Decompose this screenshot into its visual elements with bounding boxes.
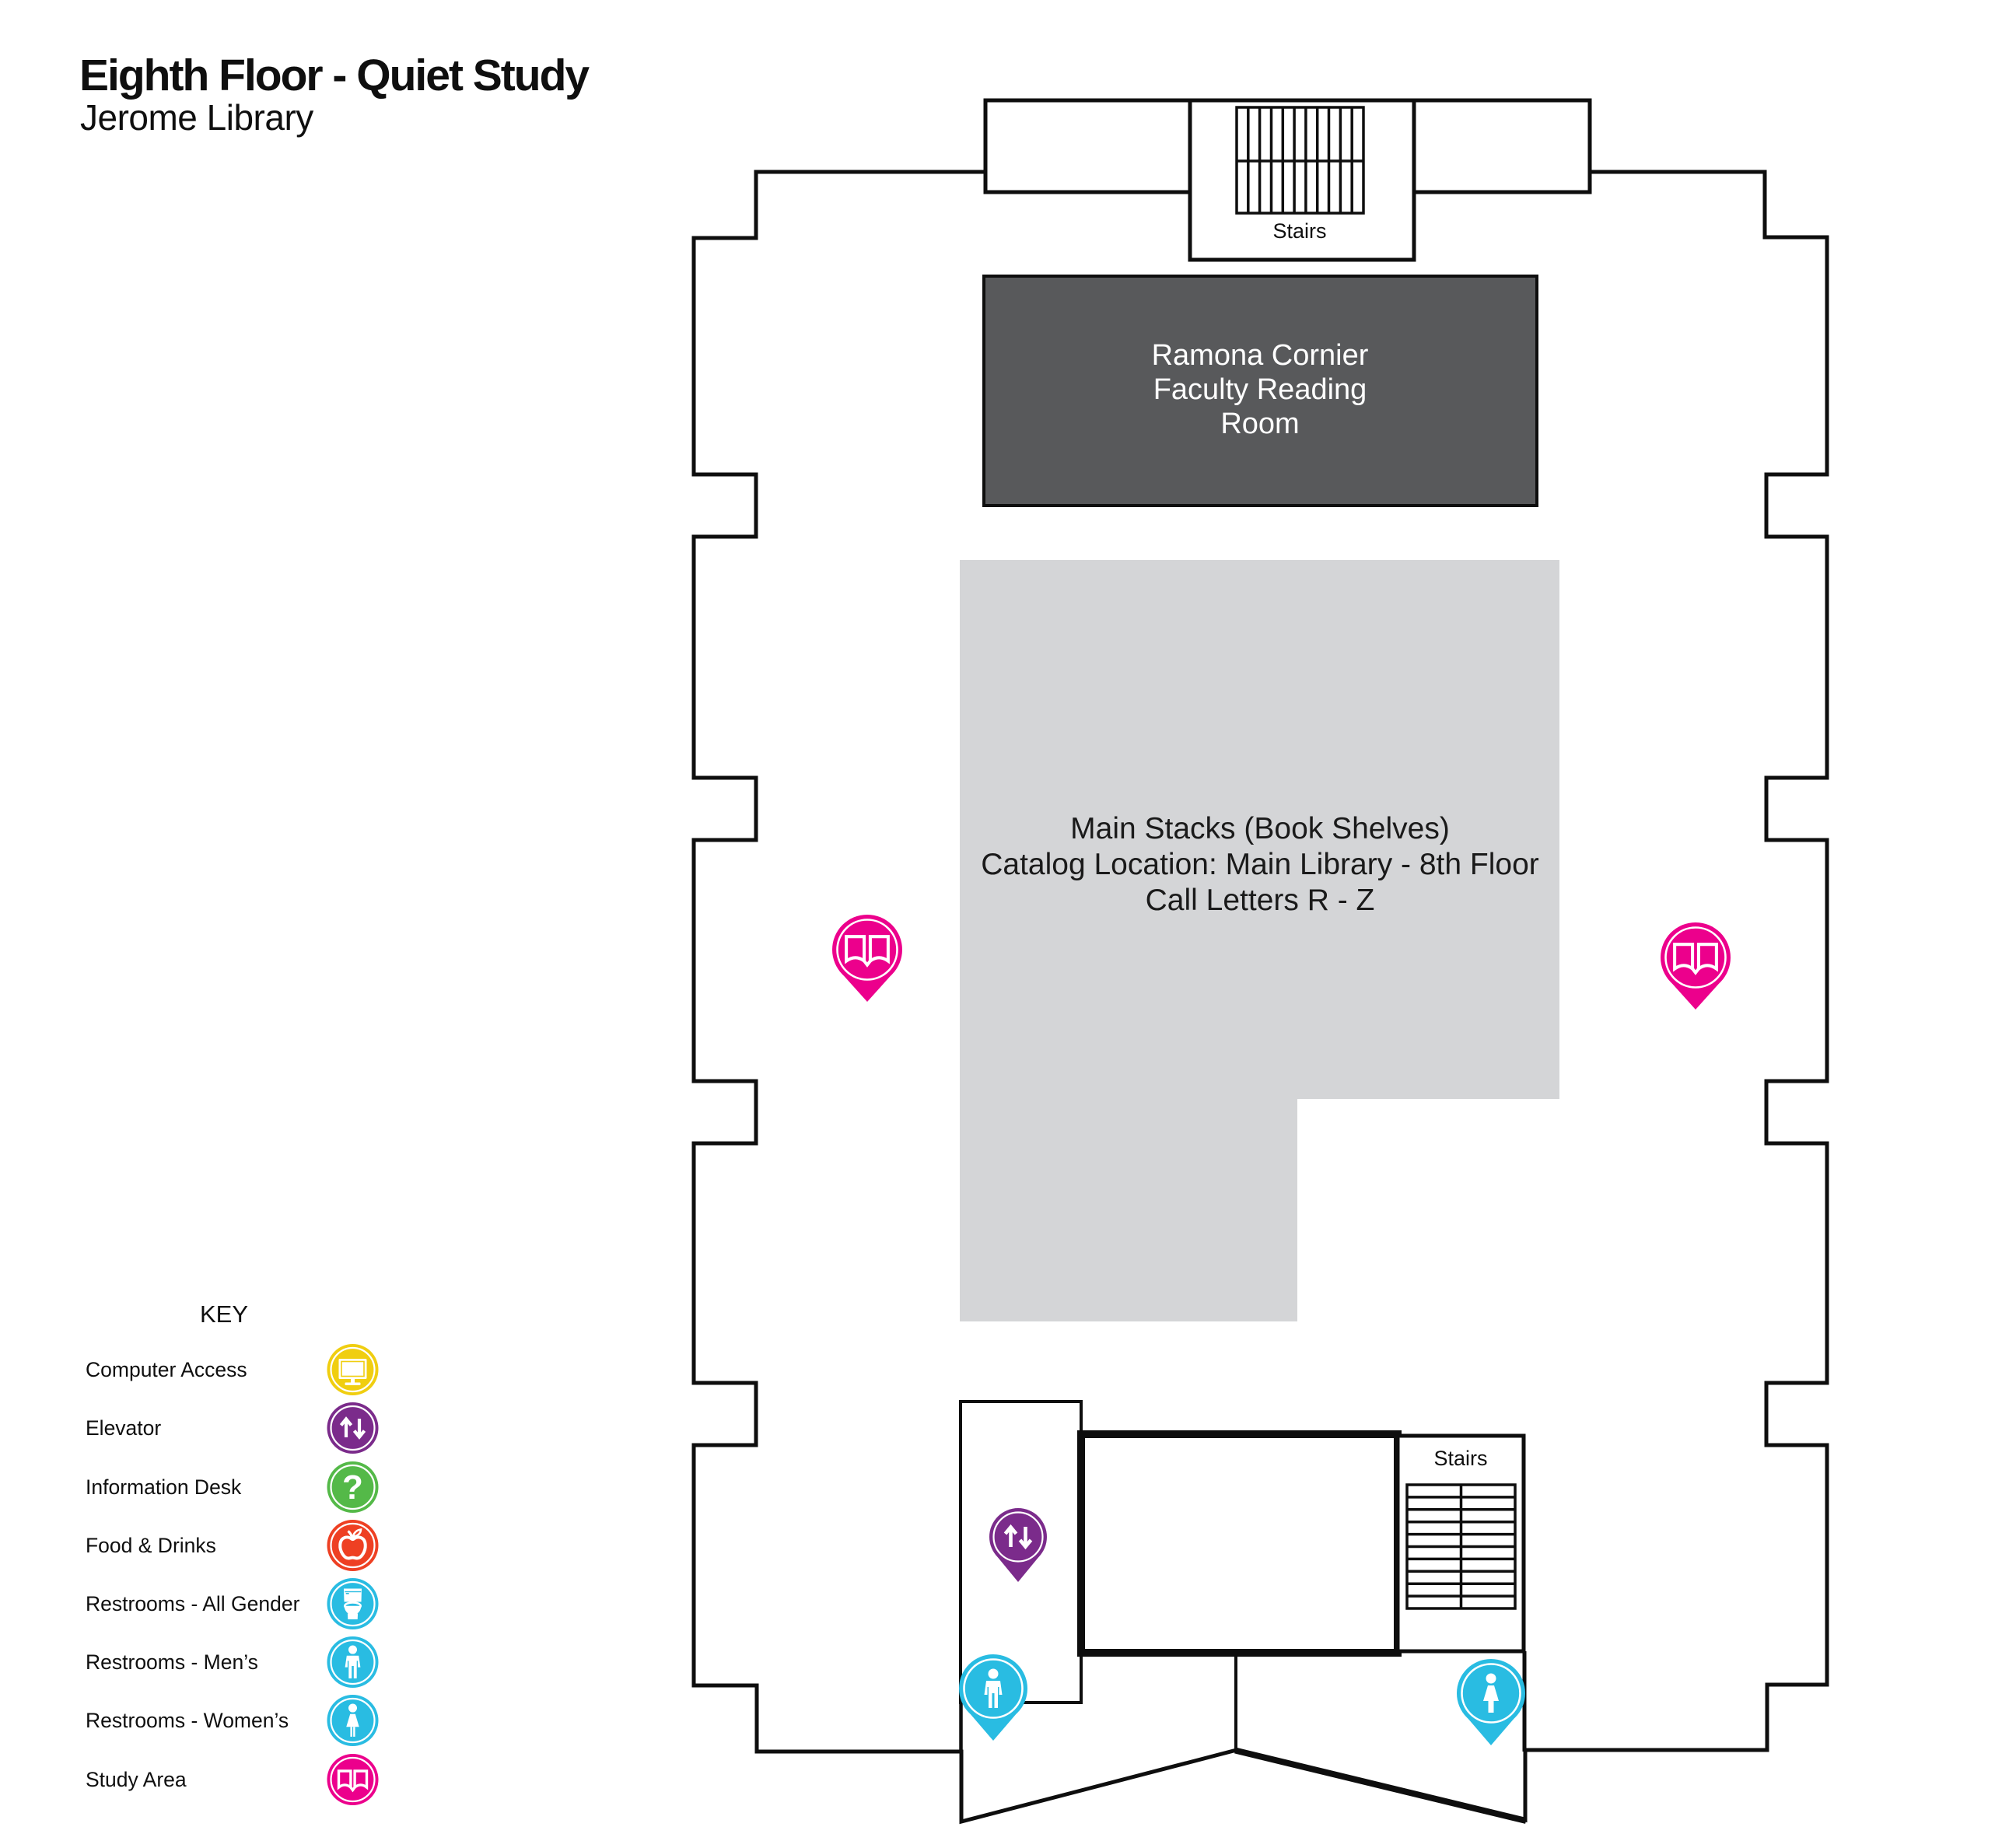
svg-text:KEY: KEY: [200, 1300, 248, 1328]
svg-text:Jerome Library: Jerome Library: [80, 97, 313, 138]
svg-text:Stairs: Stairs: [1272, 219, 1326, 243]
svg-text:Catalog Location: Main Library: Catalog Location: Main Library - 8th Flo…: [981, 848, 1539, 881]
svg-text:Room: Room: [1220, 408, 1299, 440]
svg-text:Faculty Reading: Faculty Reading: [1153, 373, 1367, 406]
svg-text:?: ?: [342, 1468, 363, 1507]
svg-text:Call Letters R - Z: Call Letters R - Z: [1146, 884, 1375, 917]
svg-text:Computer Access: Computer Access: [86, 1358, 247, 1381]
svg-text:Restrooms - All Gender: Restrooms - All Gender: [86, 1592, 300, 1615]
svg-text:Restrooms - Men’s: Restrooms - Men’s: [86, 1650, 258, 1674]
svg-text:Elevator: Elevator: [86, 1416, 161, 1440]
svg-text:Study Area: Study Area: [86, 1768, 187, 1791]
svg-text:Stairs: Stairs: [1433, 1447, 1487, 1470]
svg-text:Food & Drinks: Food & Drinks: [86, 1534, 216, 1557]
svg-text:Ramona Cornier: Ramona Cornier: [1152, 339, 1369, 372]
svg-text:Main Stacks (Book Shelves): Main Stacks (Book Shelves): [1070, 812, 1450, 845]
svg-text:Restrooms - Women’s: Restrooms - Women’s: [86, 1709, 289, 1732]
svg-text:Information Desk: Information Desk: [86, 1475, 242, 1499]
svg-text:Eighth Floor - Quiet Study: Eighth Floor - Quiet Study: [79, 51, 590, 100]
